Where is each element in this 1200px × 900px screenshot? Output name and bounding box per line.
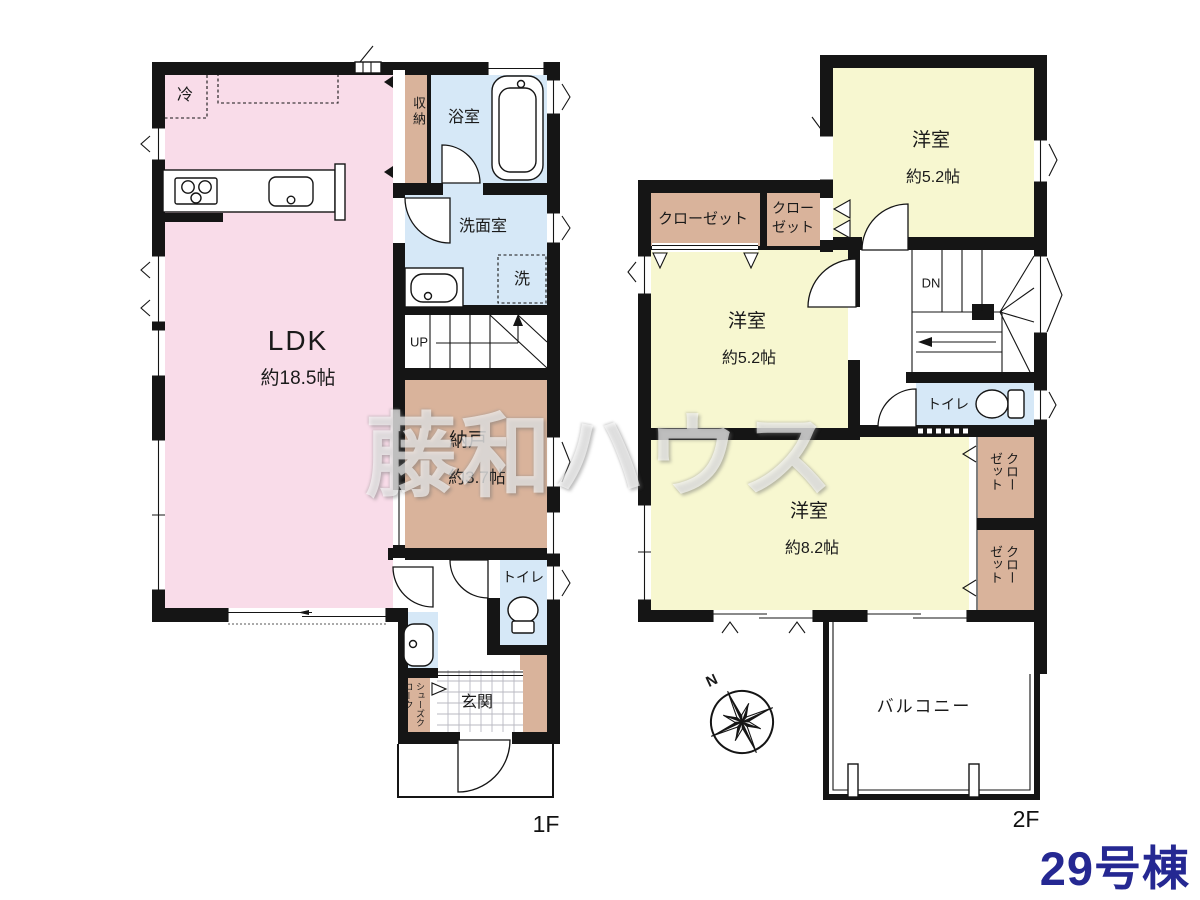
closet-d-label: クローゼット [987, 545, 1019, 592]
room-label-storage: 収納 [406, 96, 428, 128]
room-label-ldk: LDK [268, 325, 328, 357]
hall-sink-icon [404, 624, 433, 666]
floorplan-page: LDK 約18.5帖 納戸 約3.7帖 浴室 洗面室 収納 トイレ 玄関 シュー… [0, 0, 1200, 900]
room-size-western1: 約5.2帖 [906, 169, 960, 187]
stairs-down-label: DN [922, 277, 941, 292]
room-label-toilet-2f: トイレ [927, 396, 969, 412]
fridge-label: 冷 [177, 87, 193, 105]
room-size-western3: 約8.2帖 [785, 540, 839, 558]
room-size-ldk: 約18.5帖 [261, 368, 336, 390]
washer-label: 洗 [514, 271, 530, 289]
watermark-text: 藤和ハウス [365, 383, 835, 516]
kitchen-counter-icon [163, 164, 345, 220]
closet-a-label: クローゼット [658, 210, 748, 227]
room-label-bath: 浴室 [448, 109, 480, 127]
toilet-1f-icon [508, 597, 538, 633]
room-label-toilet-1f: トイレ [502, 569, 544, 585]
room-label-western2: 洋室 [728, 311, 766, 333]
room-label-washroom: 洗面室 [459, 218, 507, 236]
washroom-sink-icon [405, 268, 463, 307]
bathtub-icon [492, 76, 543, 180]
room-label-western1: 洋室 [912, 130, 950, 152]
floor-label-2f: 2F [1013, 806, 1040, 832]
toilet-2f-icon [976, 390, 1024, 418]
stairs-up-label: UP [410, 336, 428, 351]
room-label-entrance: 玄関 [461, 694, 493, 712]
unit-number-label: 29号棟 [1040, 830, 1190, 899]
floor-label-1f: 1F [533, 811, 560, 837]
closet-b-label: クローゼット [767, 199, 820, 237]
room-size-western2: 約5.2帖 [722, 350, 776, 368]
room-label-shoes-closet: シューズクローク [402, 682, 425, 732]
closet-c-label: クローゼット [987, 452, 1019, 499]
room-label-balcony: バルコニー [877, 697, 972, 717]
